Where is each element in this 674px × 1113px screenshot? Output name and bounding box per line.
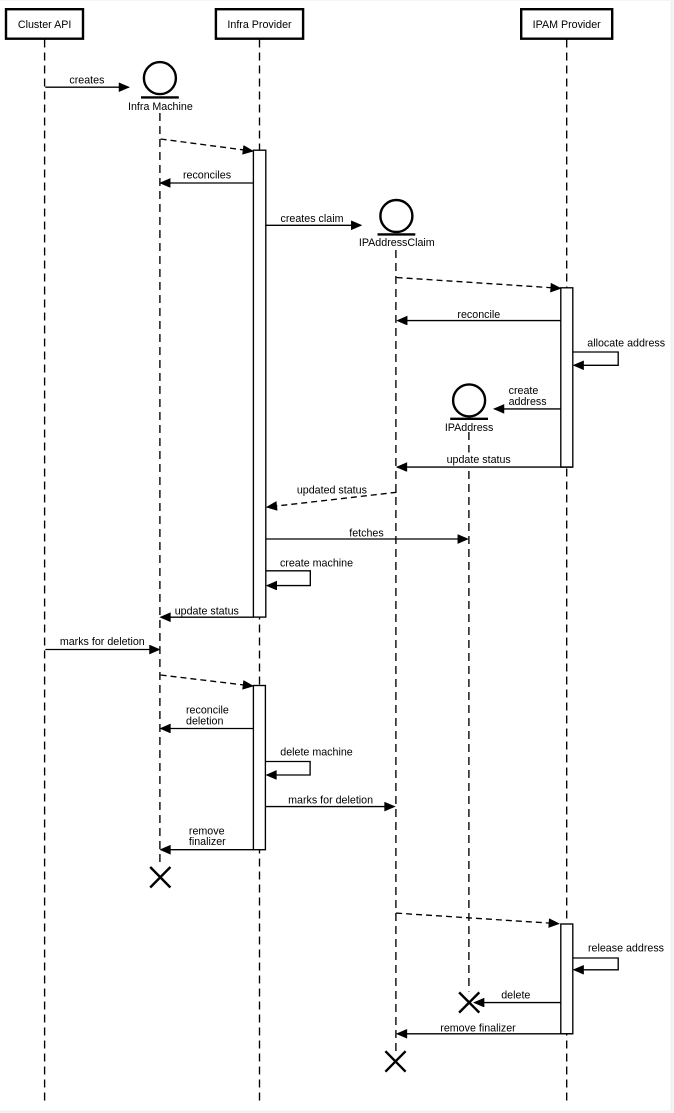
svg-text:fetches: fetches <box>349 528 383 540</box>
svg-text:deletion: deletion <box>186 715 223 727</box>
svg-text:IPAddress: IPAddress <box>445 422 494 434</box>
svg-text:creates: creates <box>69 75 104 87</box>
svg-text:IPAddressClaim: IPAddressClaim <box>359 237 435 249</box>
svg-text:create machine: create machine <box>280 557 353 569</box>
svg-text:delete: delete <box>501 990 530 1002</box>
svg-text:release address: release address <box>588 943 664 955</box>
svg-text:reconcile: reconcile <box>457 309 500 321</box>
svg-text:update status: update status <box>175 606 239 618</box>
svg-text:address: address <box>509 396 547 408</box>
svg-text:reconciles: reconciles <box>183 170 231 182</box>
svg-text:updated status: updated status <box>297 485 367 497</box>
svg-text:update status: update status <box>447 454 511 466</box>
svg-text:Cluster API: Cluster API <box>18 19 71 31</box>
svg-text:creates claim: creates claim <box>281 213 344 225</box>
svg-text:Infra Machine: Infra Machine <box>128 101 193 113</box>
svg-text:Infra Provider: Infra Provider <box>227 19 292 31</box>
svg-text:allocate address: allocate address <box>587 337 665 349</box>
svg-text:IPAM Provider: IPAM Provider <box>533 19 602 31</box>
svg-text:remove finalizer: remove finalizer <box>440 1022 516 1034</box>
svg-text:finalizer: finalizer <box>189 836 226 848</box>
svg-text:marks for deletion: marks for deletion <box>60 636 145 648</box>
svg-text:delete machine: delete machine <box>280 746 353 758</box>
svg-text:marks for deletion: marks for deletion <box>288 794 373 806</box>
